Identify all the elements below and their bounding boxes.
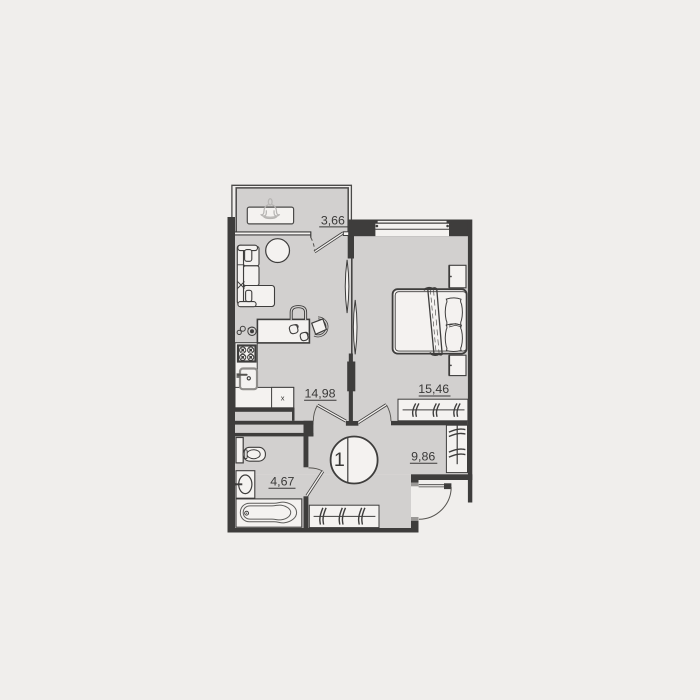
svg-text:4,67: 4,67 [270, 475, 294, 489]
svg-text:9,86: 9,86 [411, 450, 435, 464]
svg-text:15,46: 15,46 [418, 382, 449, 396]
svg-text:1: 1 [334, 449, 345, 471]
svg-text:x: x [281, 394, 285, 403]
svg-text:3,66: 3,66 [321, 214, 345, 228]
svg-text:14,98: 14,98 [304, 387, 335, 401]
